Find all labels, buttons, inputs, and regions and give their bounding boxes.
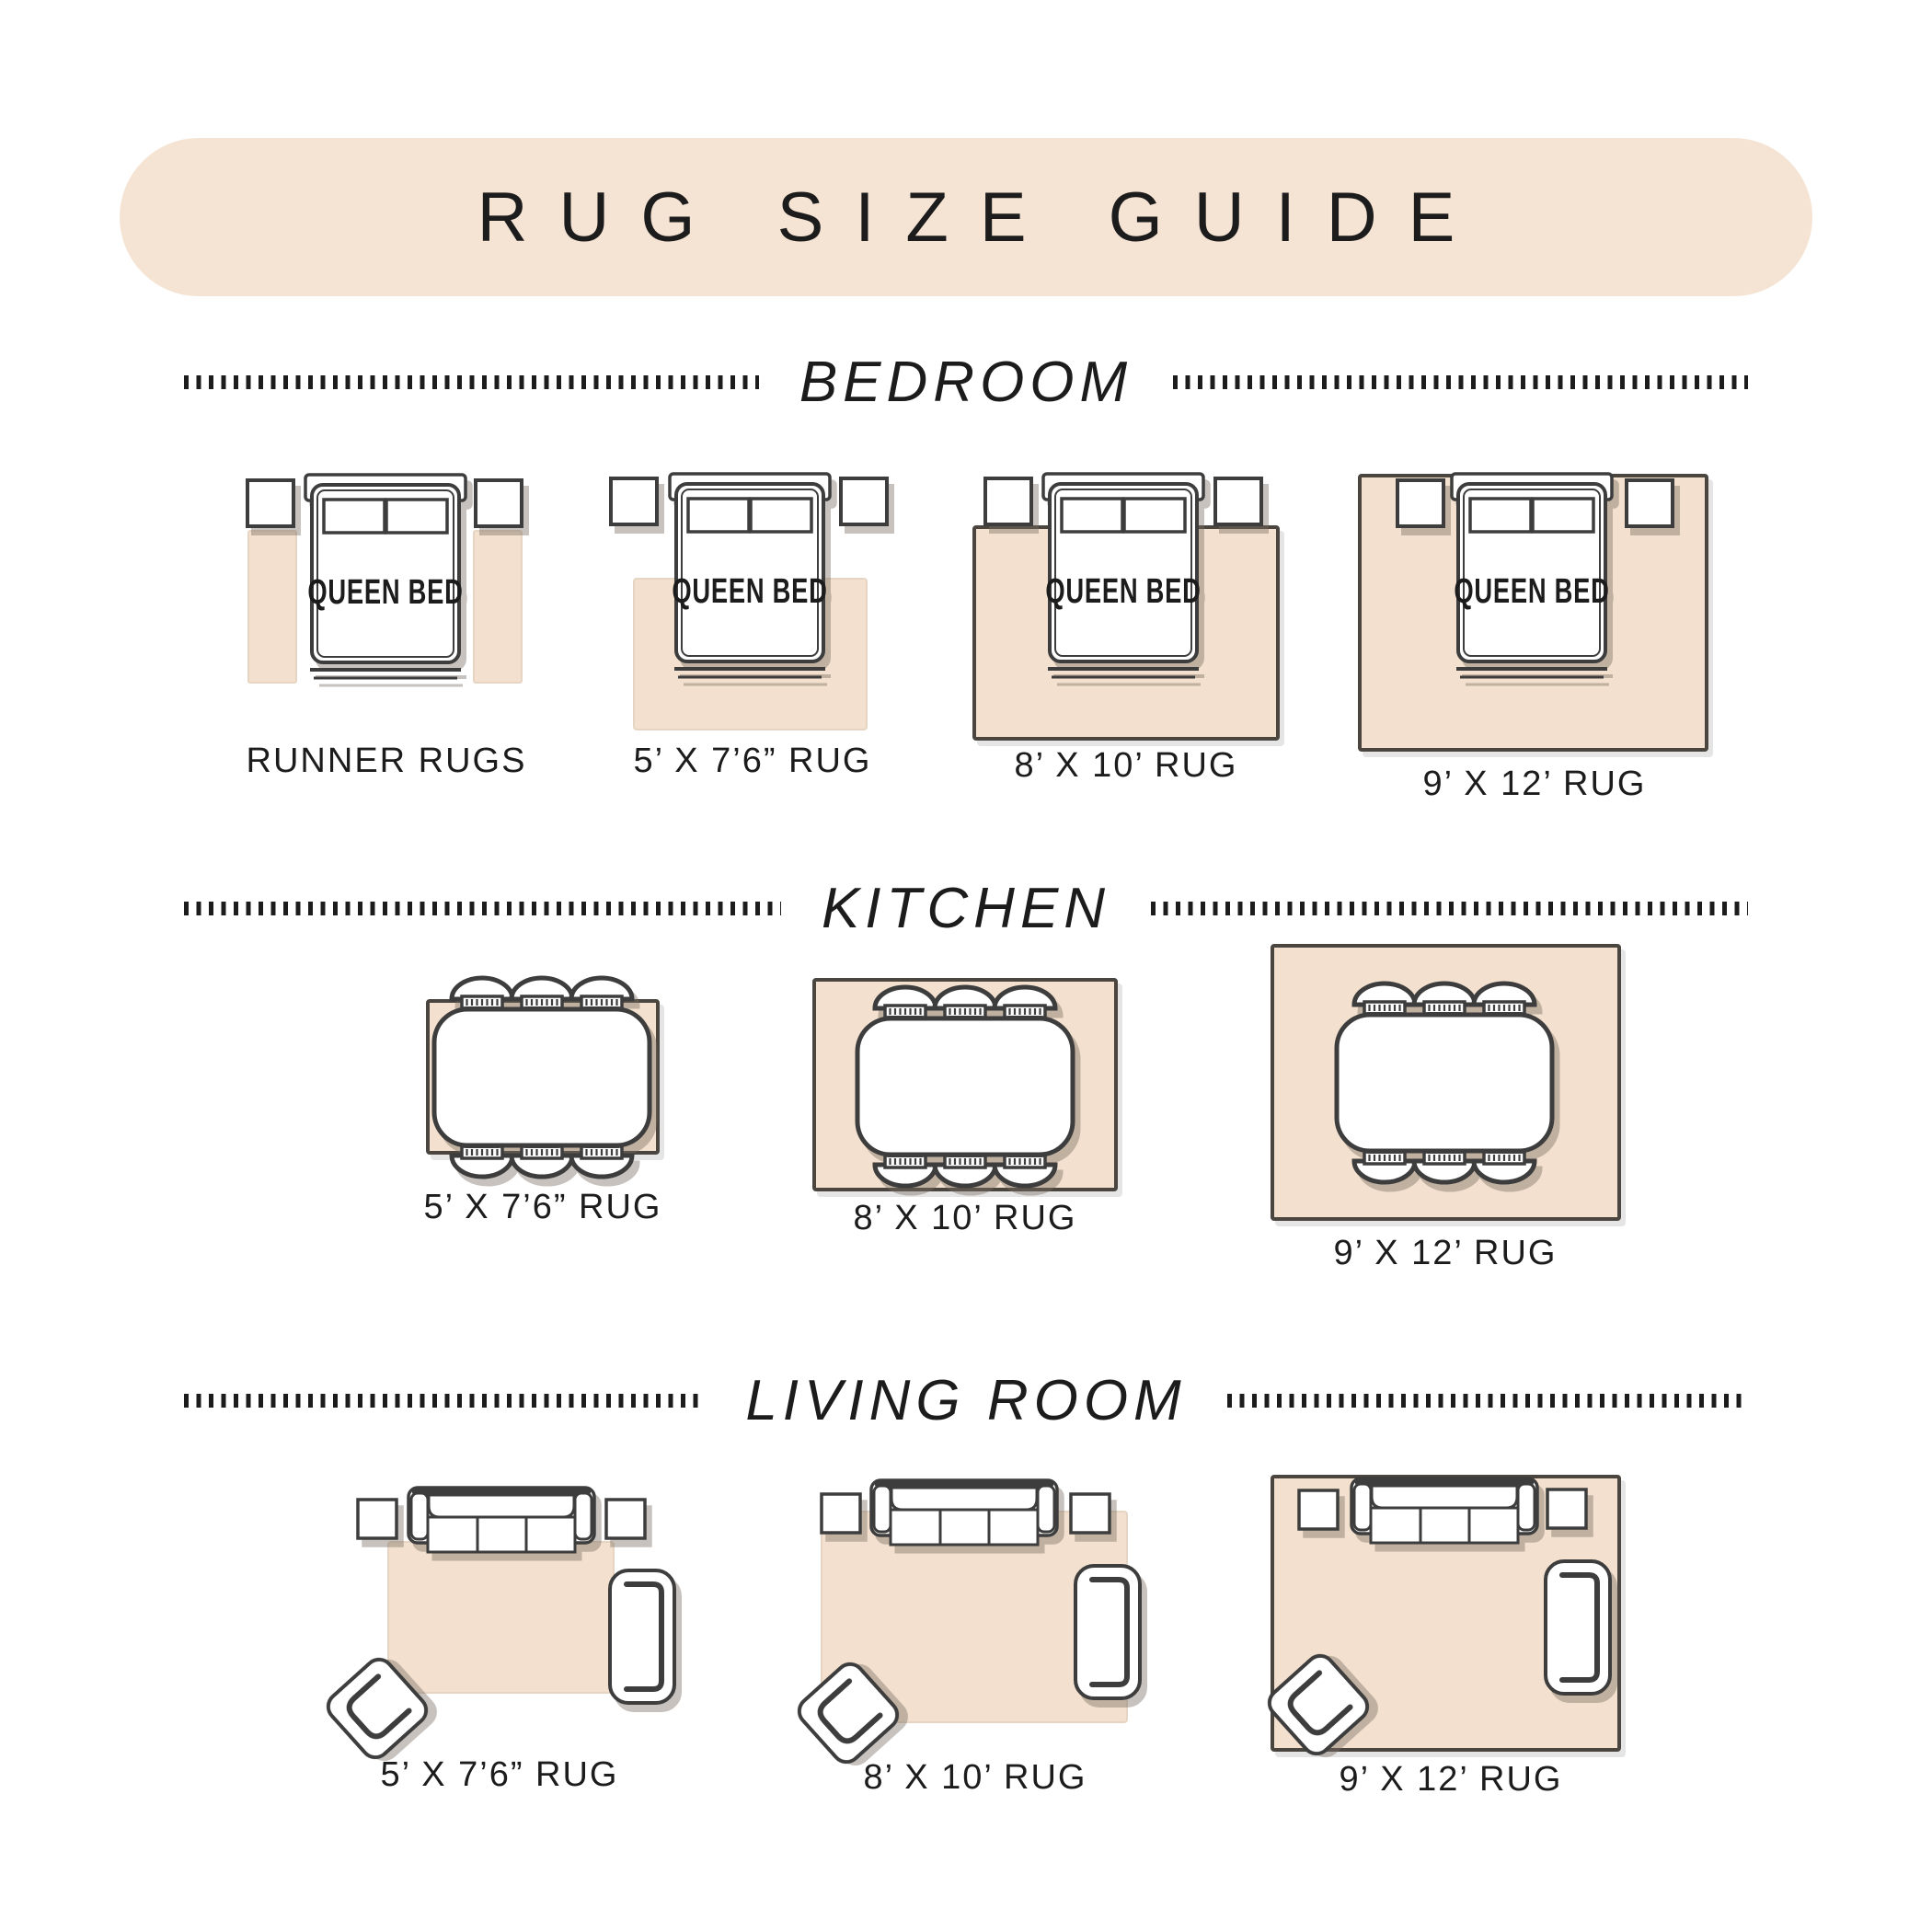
- bedroom-5x76-rug-diagram: [607, 460, 902, 736]
- section-header-living-room: LIVING ROOM: [184, 1368, 1748, 1433]
- sofa-icon: [871, 1480, 1057, 1545]
- section-title-bedroom: BEDROOM: [799, 350, 1133, 415]
- side-table-icon: [822, 1494, 860, 1533]
- rug-size-guide-canvas: QUEEN BED: [0, 0, 1932, 1932]
- living-room-5x76-rug-diagram: [304, 1467, 690, 1771]
- dotted-divider: [1173, 375, 1748, 389]
- nightstand-icon: [1627, 480, 1673, 526]
- section-header-kitchen: KITCHEN: [184, 876, 1748, 941]
- nightstand-icon: [611, 478, 657, 524]
- dotted-divider: [184, 1394, 705, 1408]
- dotted-divider: [1151, 902, 1748, 915]
- side-table-icon: [358, 1500, 397, 1538]
- bedroom-runner-rug-diagram: [230, 460, 543, 699]
- dining-set-icon: [434, 978, 650, 1177]
- section-title-living-room: LIVING ROOM: [745, 1368, 1186, 1433]
- sofa-icon: [408, 1488, 594, 1552]
- nightstand-icon: [985, 478, 1031, 524]
- queen-bed-icon: [1452, 474, 1612, 677]
- runner-rug-right: [474, 531, 522, 683]
- bedroom-8x10-rug-diagram: [966, 460, 1288, 745]
- accent-chair-icon: [1075, 1566, 1140, 1698]
- living-room-9x12-rug-diagram: [1260, 1454, 1638, 1766]
- queen-bed-icon: [670, 474, 830, 677]
- rug-size-label: RUNNER RUGS: [247, 742, 527, 781]
- rug-size-label: 9’ X 12’ RUG: [1423, 765, 1647, 804]
- title-banner: RUG SIZE GUIDE: [120, 138, 1812, 296]
- bedroom-9x12-rug-diagram: [1352, 465, 1720, 754]
- accent-chair-icon: [1546, 1561, 1610, 1694]
- rug-size-label: 5’ X 7’6” RUG: [634, 742, 872, 781]
- rug-size-label: 8’ X 10’ RUG: [864, 1758, 1087, 1798]
- section-title-kitchen: KITCHEN: [822, 876, 1110, 941]
- queen-bed-icon: [1043, 474, 1203, 677]
- dotted-divider: [1227, 1394, 1748, 1408]
- nightstand-icon: [841, 478, 887, 524]
- rug-size-label: 9’ X 12’ RUG: [1334, 1234, 1558, 1273]
- nightstand-icon: [1215, 478, 1261, 524]
- side-table-icon: [1547, 1489, 1586, 1528]
- nightstand-icon: [1397, 480, 1443, 526]
- queen-bed-icon: [305, 475, 466, 678]
- kitchen-5x76-rug-diagram: [414, 957, 681, 1187]
- living-room-8x10-rug-diagram: [791, 1463, 1159, 1776]
- dining-set-icon: [857, 987, 1073, 1186]
- runner-rug-left: [248, 531, 296, 683]
- dotted-divider: [184, 375, 759, 389]
- section-header-bedroom: BEDROOM: [184, 350, 1748, 415]
- dining-set-icon: [1337, 983, 1552, 1182]
- sofa-icon: [1351, 1478, 1537, 1543]
- page-title: RUG SIZE GUIDE: [446, 178, 1487, 258]
- rug-size-label: 5’ X 7’6” RUG: [381, 1755, 619, 1795]
- rug-size-label: 8’ X 10’ RUG: [854, 1199, 1077, 1238]
- nightstand-icon: [247, 480, 293, 526]
- area-rug: [388, 1542, 614, 1693]
- rug-size-label: 8’ X 10’ RUG: [1015, 746, 1238, 786]
- dotted-divider: [184, 902, 781, 915]
- kitchen-9x12-rug-diagram: [1260, 934, 1628, 1237]
- kitchen-8x10-rug-diagram: [800, 957, 1132, 1224]
- rug-size-label: 9’ X 12’ RUG: [1340, 1760, 1563, 1800]
- rug-size-label: 5’ X 7’6” RUG: [424, 1188, 662, 1227]
- side-table-icon: [606, 1500, 645, 1538]
- nightstand-icon: [476, 480, 522, 526]
- side-table-icon: [1071, 1494, 1110, 1533]
- side-table-icon: [1299, 1490, 1338, 1529]
- accent-chair-icon: [610, 1570, 674, 1703]
